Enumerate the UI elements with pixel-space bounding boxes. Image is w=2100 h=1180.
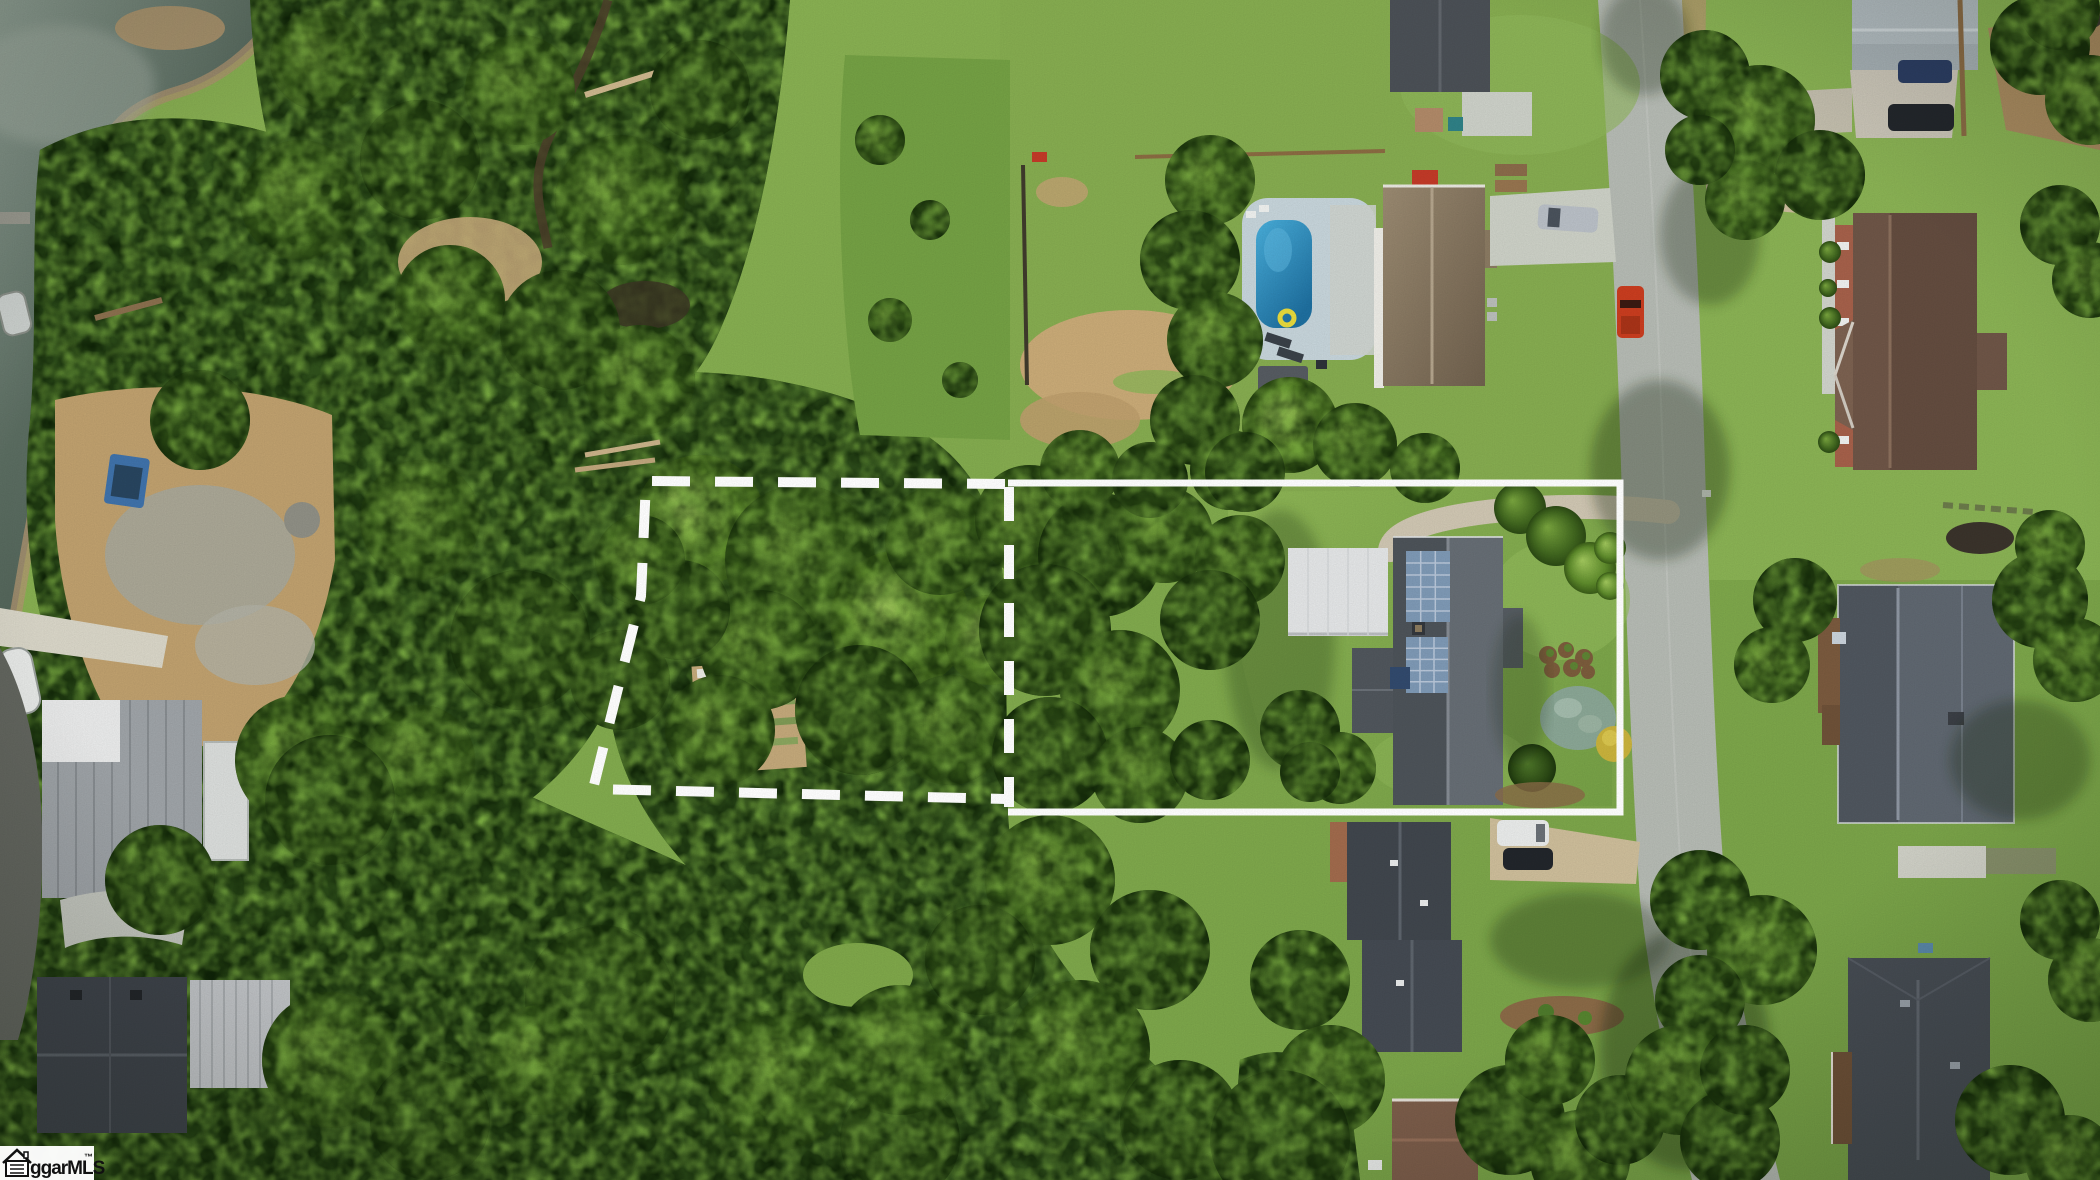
watermark-brand: ggarMLS — [30, 1158, 105, 1179]
watermark-trademark: ™ — [84, 1152, 93, 1162]
grain-overlay — [0, 0, 2100, 1180]
aerial-photo: ggarMLS ™ — [0, 0, 2100, 1180]
watermark: ggarMLS ™ — [0, 1146, 105, 1180]
aerial-photo-stage: ggarMLS ™ — [0, 0, 2100, 1180]
